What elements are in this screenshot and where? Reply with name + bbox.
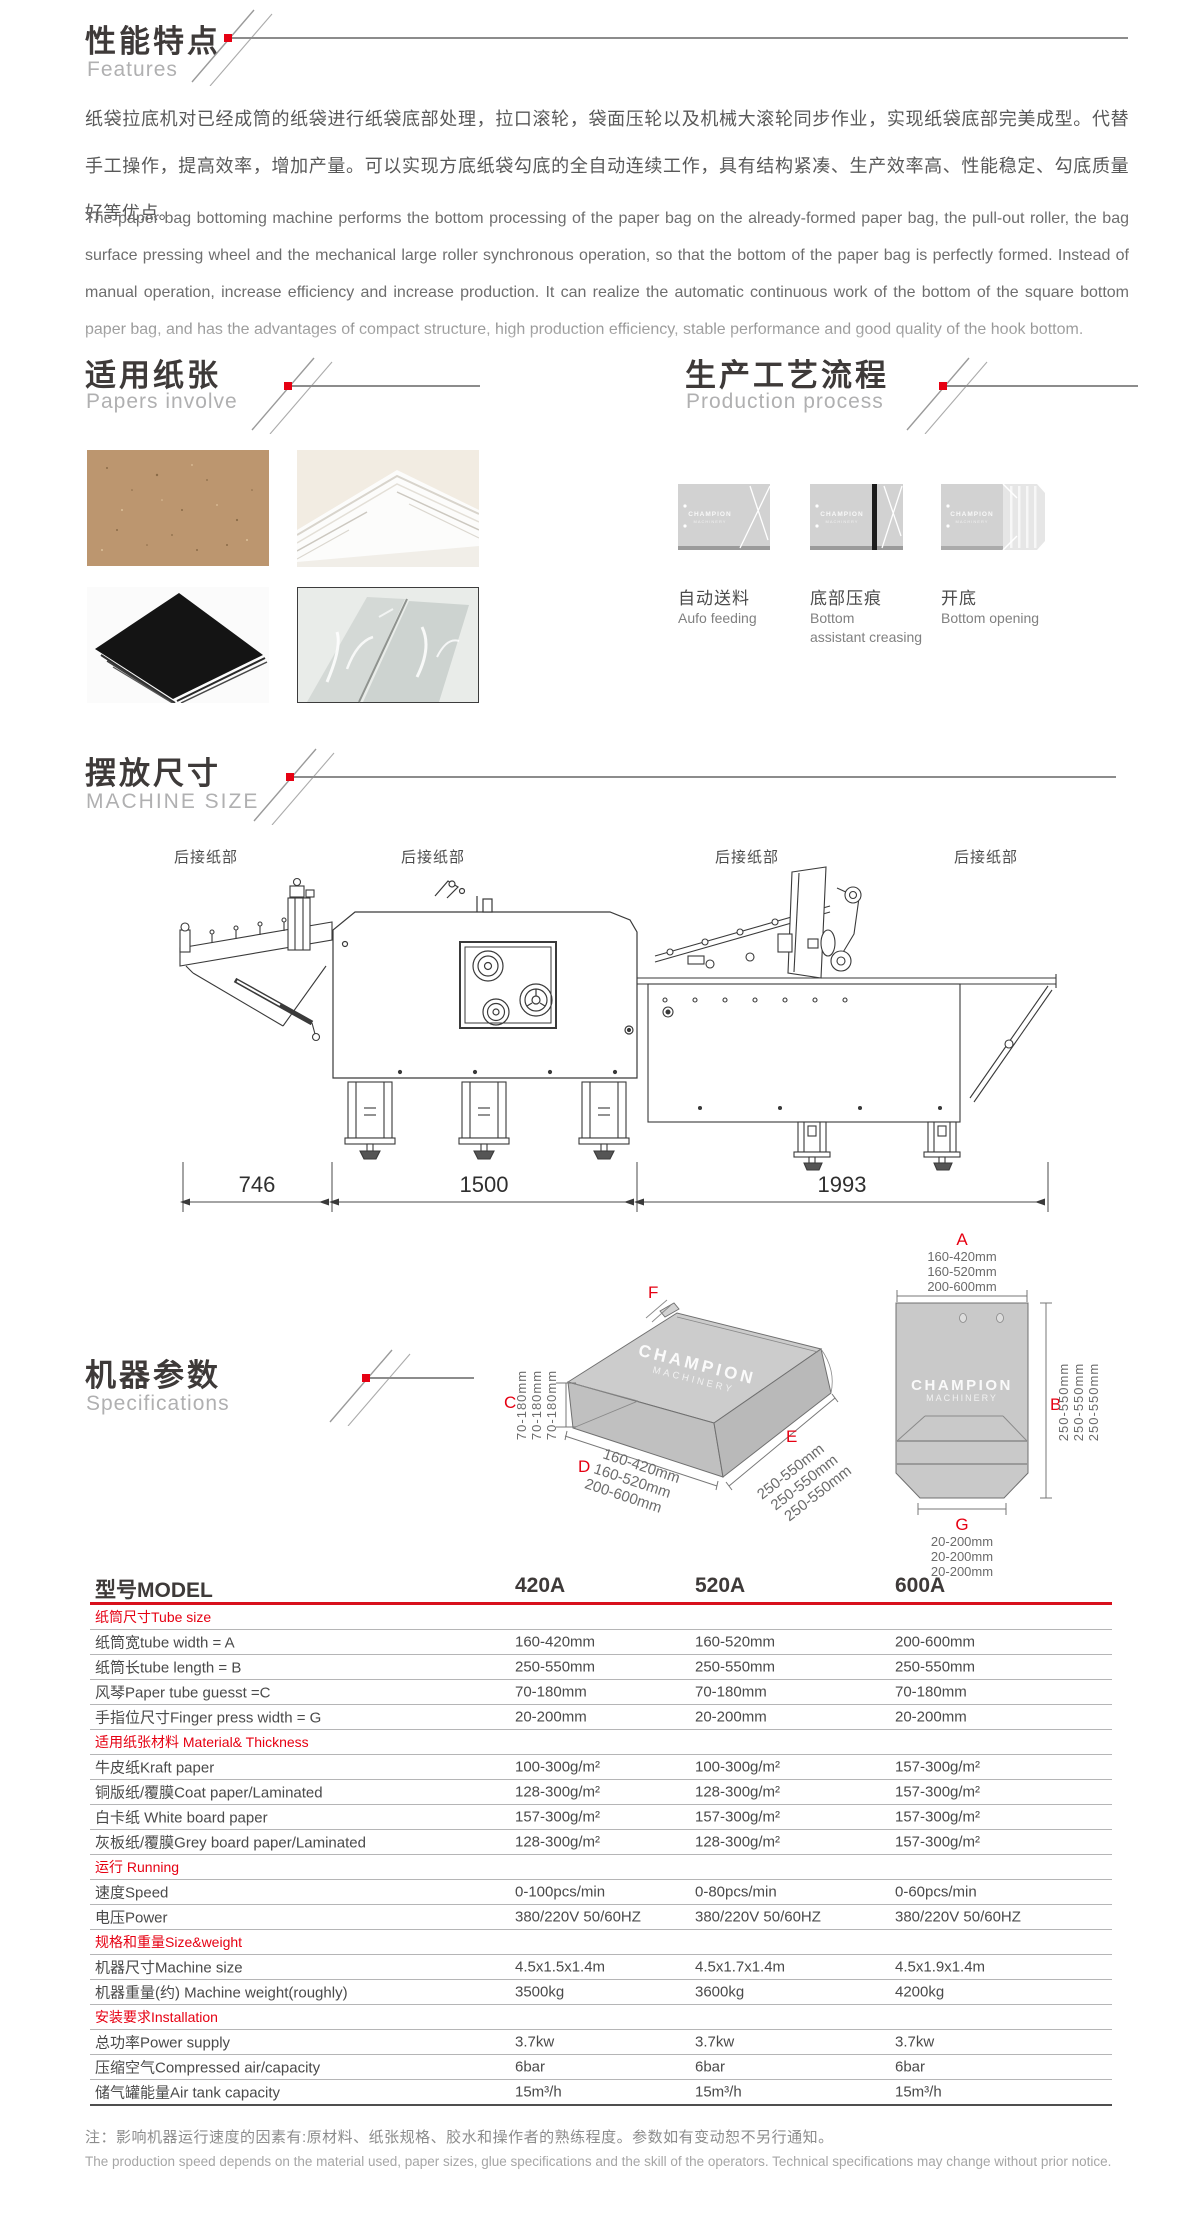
- process-step-label-en: Bottom: [810, 608, 854, 628]
- row-label: 电压Power: [95, 1907, 168, 1928]
- row-value: 0-60pcs/min: [895, 1884, 977, 1901]
- row-value: 3500kg: [515, 1984, 564, 2001]
- row-label: 储气罐能量Air tank capacity: [95, 2082, 280, 2103]
- table-row: 风琴Paper tube guesst =C 70-180mm 70-180mm…: [90, 1680, 1112, 1705]
- row-value: 128-300g/m²: [515, 1834, 600, 1851]
- watermark-machinery: MACHINERY: [694, 519, 727, 524]
- process-step-label-cn: 底部压痕: [810, 584, 882, 609]
- row-value: 0-80pcs/min: [695, 1884, 777, 1901]
- dim-1993: 1993: [818, 1172, 867, 1197]
- row-value: 15m³/h: [695, 2084, 742, 2101]
- process-step-image-auto-feeding: CHAMPION MACHINERY: [678, 484, 770, 554]
- process-step-label-en2: assistant creasing: [810, 627, 922, 647]
- row-value: 380/220V 50/60HZ: [895, 1909, 1021, 1926]
- model-600A: 600A: [895, 1574, 945, 1598]
- table-section-row: 规格和重量Size&weight: [90, 1930, 1112, 1955]
- svg-text:MACHINERY: MACHINERY: [926, 1393, 998, 1403]
- process-title-cn: 生产工艺流程: [685, 350, 889, 395]
- footnote-cn: 注：影响机器运行速度的因素有:原材料、纸张规格、胶水和操作者的熟练程度。参数如有…: [85, 2126, 834, 2147]
- process-step-image-bottom-creasing: CHAMPION MACHINERY: [810, 484, 903, 554]
- row-value: 4.5x1.7x1.4m: [695, 1959, 785, 1976]
- row-label: 纸筒宽tube width = A: [95, 1632, 235, 1653]
- delivery-table: [637, 867, 1056, 1122]
- row-value: 3600kg: [695, 1984, 744, 2001]
- row-value: 128-300g/m²: [695, 1834, 780, 1851]
- bag-flat-diagram: CHAMPION MACHINERY A 160-420mm 160-520mm…: [896, 1230, 1101, 1579]
- red-square-accent: [362, 1374, 370, 1382]
- process-step-label-en: Aufo feeding: [678, 608, 757, 628]
- table-section-row: 适用纸张材料 Material& Thickness: [90, 1730, 1112, 1755]
- red-square-accent: [939, 382, 947, 390]
- row-label: 机器重量(约) Machine weight(roughly): [95, 1982, 348, 2003]
- table-row: 总功率Power supply 3.7kw 3.7kw 3.7kw: [90, 2030, 1112, 2055]
- row-value: 15m³/h: [515, 2084, 562, 2101]
- table-row: 储气罐能量Air tank capacity 15m³/h 15m³/h 15m…: [90, 2080, 1112, 2106]
- row-label: 铜版纸/覆膜Coat paper/Laminated: [95, 1782, 323, 1803]
- row-value: 3.7kw: [515, 2034, 554, 2051]
- papers-title-en: Papers involve: [86, 390, 238, 414]
- row-value: 250-550mm: [515, 1659, 595, 1676]
- row-label: 速度Speed: [95, 1882, 168, 1903]
- watermark-champion: CHAMPION: [820, 511, 863, 518]
- features-paragraph-en: The paper bag bottoming machine performs…: [85, 200, 1129, 348]
- watermark-champion: CHAMPION: [950, 511, 993, 518]
- row-value: 157-300g/m²: [895, 1834, 980, 1851]
- bag-dim-letter-E: E: [786, 1427, 797, 1446]
- row-value: 3.7kw: [895, 2034, 934, 2051]
- spec-table: 型号MODEL 420A 520A 600A 纸筒尺寸Tube size 纸筒宽…: [90, 1572, 1112, 2106]
- bag-dim-letter-A: A: [956, 1230, 968, 1249]
- section-label: 运行 Running: [95, 1857, 179, 1877]
- machine-size-title-en: MACHINE SIZE: [86, 790, 259, 814]
- table-section-row: 安装要求Installation: [90, 2005, 1112, 2030]
- row-value: 100-300g/m²: [515, 1759, 600, 1776]
- dimension-values: 746 1500 1993: [239, 1172, 867, 1197]
- process-step-image-bottom-opening: CHAMPION MACHINERY: [941, 484, 1045, 554]
- catalog-page: 性能特点 Features 纸袋拉底机对已经成筒的纸袋进行纸袋底部处理，拉口滚轮…: [0, 0, 1200, 2215]
- row-value: 15m³/h: [895, 2084, 942, 2101]
- row-label: 灰板纸/覆膜Grey board paper/Laminated: [95, 1832, 366, 1853]
- process-title-en: Production process: [686, 390, 884, 414]
- red-square-accent: [224, 34, 232, 42]
- section-label: 安装要求Installation: [95, 2007, 218, 2027]
- row-value: 380/220V 50/60HZ: [515, 1909, 641, 1926]
- table-section-row: 运行 Running: [90, 1855, 1112, 1880]
- row-value: 4.5x1.5x1.4m: [515, 1959, 605, 1976]
- features-section-rule: [180, 2, 1132, 86]
- table-row: 机器尺寸Machine size 4.5x1.5x1.4m 4.5x1.7x1.…: [90, 1955, 1112, 1980]
- machine-size-title-cn: 摆放尺寸: [85, 748, 221, 793]
- table-row: 电压Power 380/220V 50/60HZ 380/220V 50/60H…: [90, 1905, 1112, 1930]
- row-value: 100-300g/m²: [695, 1759, 780, 1776]
- row-value: 70-180mm: [695, 1684, 767, 1701]
- row-value: 157-300g/m²: [895, 1809, 980, 1826]
- row-label: 白卡纸 White board paper: [95, 1807, 268, 1828]
- watermark-flat-bag: CHAMPION MACHINERY: [911, 1377, 1013, 1403]
- section-label: 规格和重量Size&weight: [95, 1932, 242, 1952]
- row-value: 4.5x1.9x1.4m: [895, 1959, 985, 1976]
- row-label: 风琴Paper tube guesst =C: [95, 1682, 271, 1703]
- svg-text:160-420mm: 160-420mm: [927, 1249, 996, 1264]
- row-value: 160-520mm: [695, 1634, 775, 1651]
- table-row: 铜版纸/覆膜Coat paper/Laminated 128-300g/m² 1…: [90, 1780, 1112, 1805]
- row-value: 157-300g/m²: [515, 1809, 600, 1826]
- photo-white-paper-stack: [297, 450, 479, 567]
- dim-1500: 1500: [460, 1172, 509, 1197]
- row-value: 200-600mm: [895, 1634, 975, 1651]
- bag-dim-letter-D: D: [578, 1457, 590, 1476]
- bag-dim-letter-G: G: [955, 1515, 968, 1534]
- row-value: 250-550mm: [895, 1659, 975, 1676]
- svg-text:70-180mm: 70-180mm: [544, 1370, 559, 1440]
- svg-text:250-550mm: 250-550mm: [1071, 1363, 1086, 1441]
- bag-dim-letter-F: F: [648, 1283, 658, 1302]
- row-value: 70-180mm: [895, 1684, 967, 1701]
- footnote-en: The production speed depends on the mate…: [85, 2152, 1125, 2171]
- bag-dim-values-B: 250-550mm 250-550mm 250-550mm: [1056, 1363, 1101, 1441]
- row-value: 157-300g/m²: [695, 1809, 780, 1826]
- bag-dim-values-E: 250-550mm 250-550mm 250-550mm: [754, 1436, 855, 1530]
- svg-text:20-200mm: 20-200mm: [931, 1534, 993, 1549]
- specs-title-cn: 机器参数: [85, 1350, 221, 1395]
- table-row: 机器重量(约) Machine weight(roughly) 3500kg 3…: [90, 1980, 1112, 2005]
- papers-title-cn: 适用纸张: [85, 350, 221, 395]
- row-value: 157-300g/m²: [895, 1784, 980, 1801]
- delivery-table-legs: [794, 1122, 960, 1170]
- process-section-rule: [895, 350, 1142, 434]
- table-row: 纸筒长tube length = B 250-550mm 250-550mm 2…: [90, 1655, 1112, 1680]
- table-section-row: 纸筒尺寸Tube size: [90, 1605, 1112, 1630]
- dim-746: 746: [239, 1172, 276, 1197]
- row-value: 6bar: [515, 2059, 545, 2076]
- photo-black-paper: [87, 587, 269, 703]
- bag-dim-values-C: 70-180mm 70-180mm 70-180mm: [514, 1370, 559, 1440]
- svg-text:250-550mm: 250-550mm: [1086, 1363, 1101, 1441]
- infeed-conveyor: [180, 879, 332, 1041]
- row-value: 128-300g/m²: [695, 1784, 780, 1801]
- row-value: 250-550mm: [695, 1659, 775, 1676]
- watermark-machinery: MACHINERY: [826, 519, 859, 524]
- row-value: 157-300g/m²: [895, 1759, 980, 1776]
- section-label: 适用纸张材料 Material& Thickness: [95, 1732, 309, 1752]
- papers-section-rule: [240, 350, 484, 434]
- section-label: 纸筒尺寸Tube size: [95, 1607, 211, 1627]
- table-row: 手指位尺寸Finger press width = G 20-200mm 20-…: [90, 1705, 1112, 1730]
- process-step-label-cn: 开底: [941, 584, 977, 609]
- spec-table-header: 型号MODEL 420A 520A 600A: [90, 1572, 1112, 1605]
- row-value: 6bar: [695, 2059, 725, 2076]
- row-value: 0-100pcs/min: [515, 1884, 605, 1901]
- row-value: 3.7kw: [695, 2034, 734, 2051]
- watermark-champion: CHAMPION: [688, 511, 731, 518]
- row-label: 总功率Power supply: [95, 2032, 230, 2053]
- row-label: 压缩空气Compressed air/capacity: [95, 2057, 320, 2078]
- row-label: 手指位尺寸Finger press width = G: [95, 1707, 321, 1728]
- row-value: 70-180mm: [515, 1684, 587, 1701]
- row-value: 160-420mm: [515, 1634, 595, 1651]
- red-square-accent: [286, 773, 294, 781]
- svg-text:70-180mm: 70-180mm: [514, 1370, 529, 1440]
- model-label: 型号MODEL: [95, 1574, 213, 1604]
- row-label: 机器尺寸Machine size: [95, 1957, 243, 1978]
- photo-laminated-glossy-paper: [297, 587, 479, 703]
- svg-text:250-550mm: 250-550mm: [1056, 1363, 1071, 1441]
- model-520A: 520A: [695, 1574, 745, 1598]
- svg-text:160-520mm: 160-520mm: [927, 1264, 996, 1279]
- red-square-accent: [284, 382, 292, 390]
- process-step-label-en: Bottom opening: [941, 608, 1039, 628]
- table-row: 纸筒宽tube width = A 160-420mm 160-520mm 20…: [90, 1630, 1112, 1655]
- row-value: 6bar: [895, 2059, 925, 2076]
- bag-3d-diagram: CHAMPION MACHINERY C 70-180mm 70-180mm 7…: [504, 1283, 855, 1530]
- svg-text:70-180mm: 70-180mm: [529, 1370, 544, 1440]
- row-value: 20-200mm: [895, 1709, 967, 1726]
- features-title-en: Features: [87, 58, 178, 82]
- row-label: 牛皮纸Kraft paper: [95, 1757, 214, 1778]
- svg-text:20-200mm: 20-200mm: [931, 1549, 993, 1564]
- row-label: 纸筒长tube length = B: [95, 1657, 241, 1678]
- svg-text:200-600mm: 200-600mm: [927, 1279, 996, 1294]
- bag-dimension-diagrams: CHAMPION MACHINERY C 70-180mm 70-180mm 7…: [380, 1230, 1110, 1580]
- machine-size-section-rule: [242, 741, 1120, 825]
- dimension-lines: [183, 1162, 1048, 1212]
- svg-text:CHAMPION: CHAMPION: [911, 1377, 1013, 1394]
- specs-title-en: Specifications: [86, 1392, 230, 1416]
- photo-kraft-paper: [87, 450, 269, 566]
- table-row: 压缩空气Compressed air/capacity 6bar 6bar 6b…: [90, 2055, 1112, 2080]
- process-step-label-cn: 自动送料: [678, 584, 750, 609]
- table-row: 灰板纸/覆膜Grey board paper/Laminated 128-300…: [90, 1830, 1112, 1855]
- bag-dim-values-A: 160-420mm 160-520mm 200-600mm: [927, 1249, 996, 1294]
- row-value: 128-300g/m²: [515, 1784, 600, 1801]
- main-body: [333, 881, 637, 1078]
- row-value: 20-200mm: [695, 1709, 767, 1726]
- row-value: 4200kg: [895, 1984, 944, 2001]
- table-row: 速度Speed 0-100pcs/min 0-80pcs/min 0-60pcs…: [90, 1880, 1112, 1905]
- row-value: 20-200mm: [515, 1709, 587, 1726]
- model-420A: 420A: [515, 1574, 565, 1598]
- table-row: 牛皮纸Kraft paper 100-300g/m² 100-300g/m² 1…: [90, 1755, 1112, 1780]
- table-row: 白卡纸 White board paper 157-300g/m² 157-30…: [90, 1805, 1112, 1830]
- machine-technical-drawing: 746 1500 1993: [140, 840, 1100, 1220]
- main-body-legs: [345, 1082, 629, 1159]
- row-value: 380/220V 50/60HZ: [695, 1909, 821, 1926]
- watermark-machinery: MACHINERY: [956, 519, 989, 524]
